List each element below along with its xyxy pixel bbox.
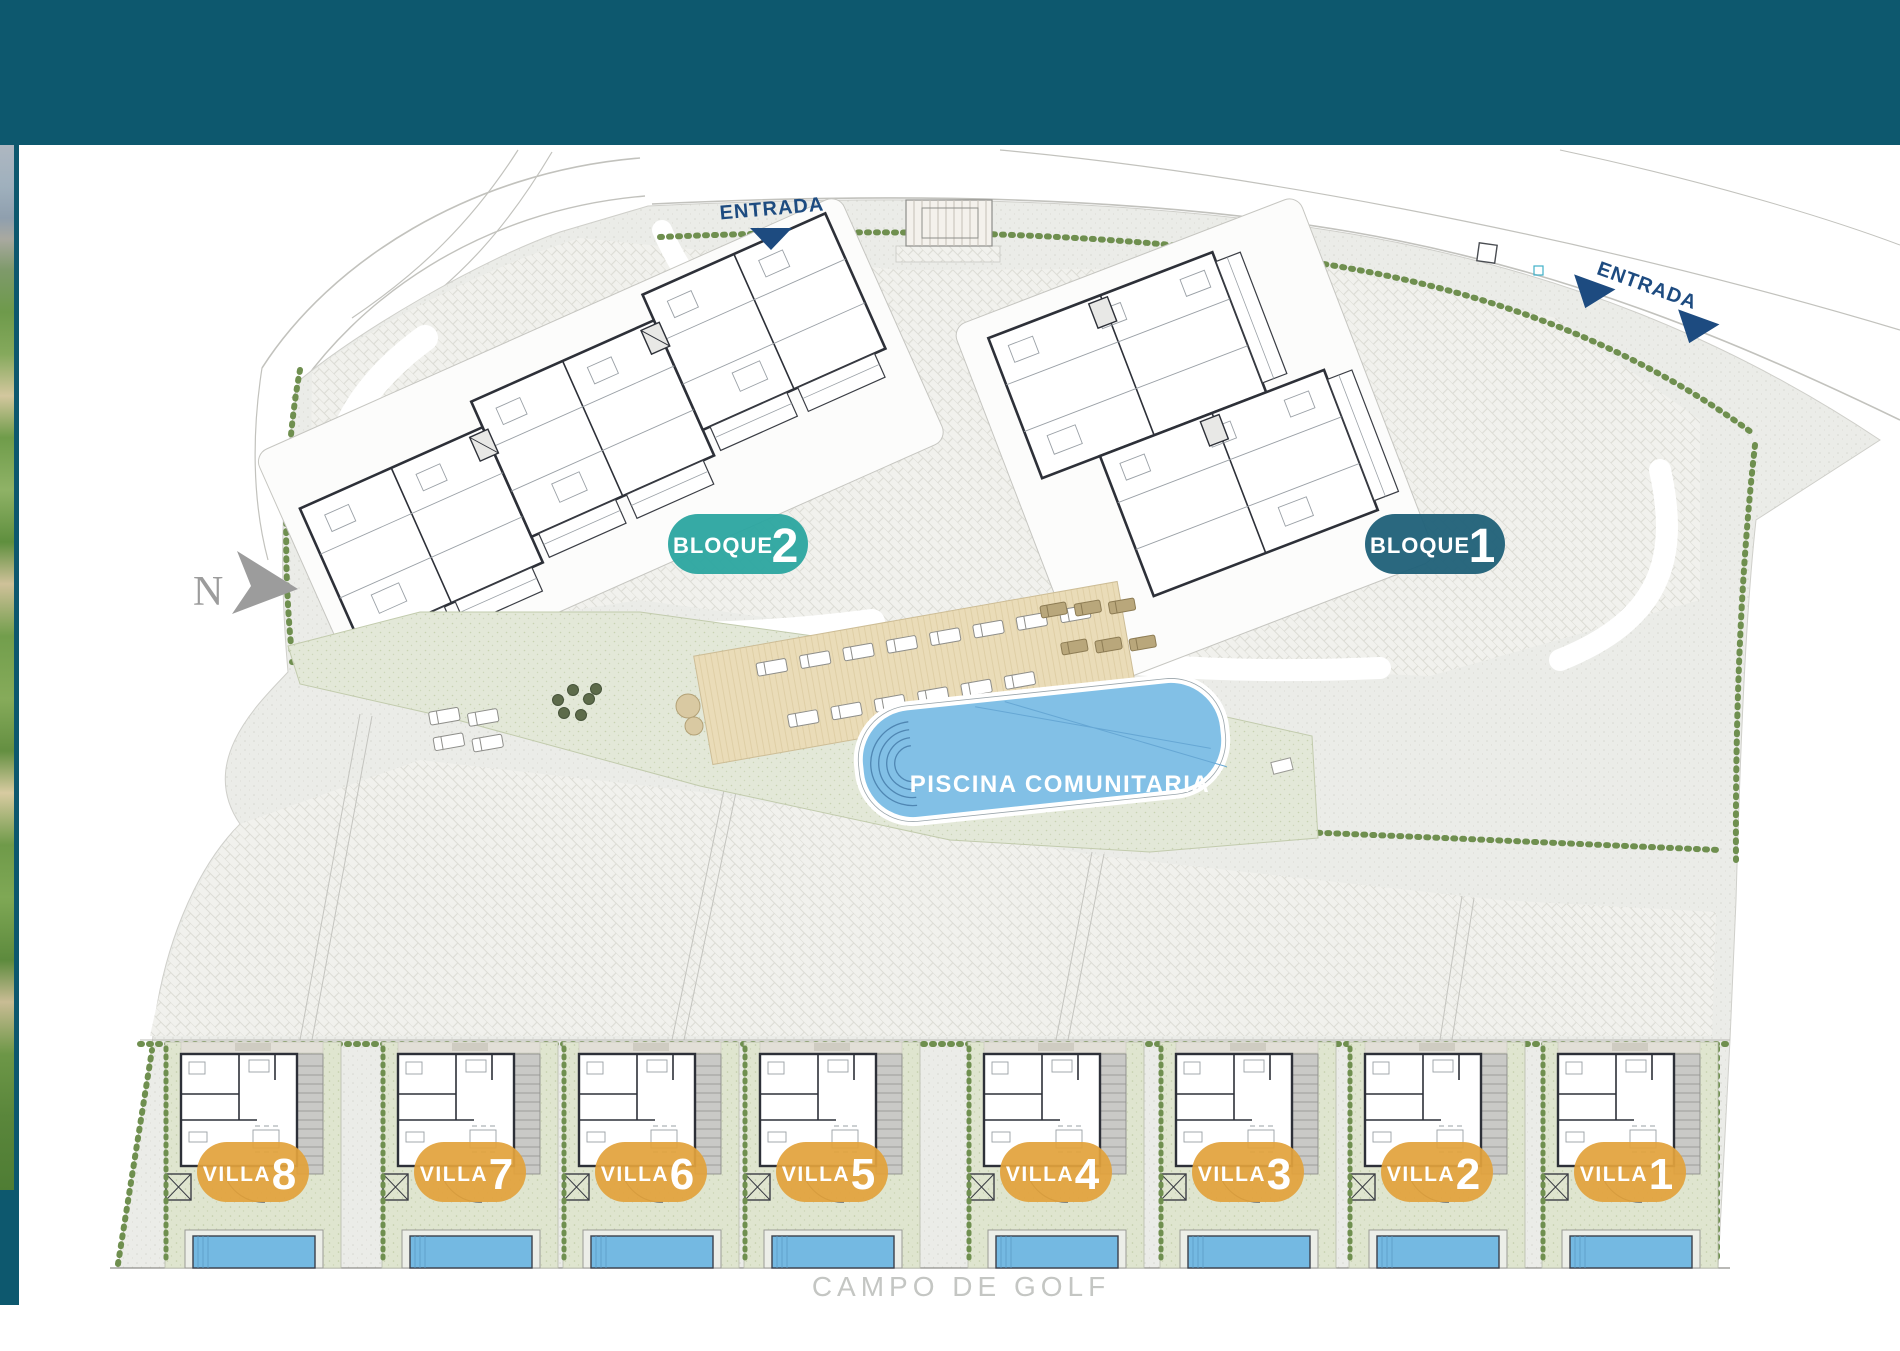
villa-badge-7: VILLA 7: [414, 1142, 526, 1202]
villa-number: 7: [489, 1150, 513, 1199]
villa-number: 8: [272, 1150, 296, 1199]
villa-number: 3: [1267, 1150, 1291, 1199]
villa-number: 1: [1649, 1150, 1673, 1199]
villa-badge-3: VILLA 3: [1192, 1142, 1304, 1202]
bloque-1-number: 1: [1469, 520, 1496, 573]
villa-label: VILLA: [1387, 1163, 1455, 1186]
villa-label: VILLA: [420, 1163, 488, 1186]
site-plan: PISCINA COMUNITARIA BLOQUE 2 BLOQUE 1 EN…: [0, 0, 1900, 1351]
utility-marker: [1534, 266, 1543, 275]
villa-badge-1: VILLA 1: [1574, 1142, 1686, 1202]
bloque-2-word: BLOQUE: [673, 533, 773, 558]
golf-course-label: CAMPO DE GOLF: [812, 1271, 1110, 1302]
north-label: N: [193, 569, 223, 615]
utility-box: [1477, 243, 1497, 263]
pool-label: PISCINA COMUNITARIA: [910, 771, 1211, 798]
villa-label: VILLA: [782, 1163, 850, 1186]
villa-badge-5: VILLA 5: [776, 1142, 888, 1202]
villa-number: 4: [1075, 1150, 1100, 1199]
villa-badge-8: VILLA 8: [197, 1142, 309, 1202]
villa-label: VILLA: [1006, 1163, 1074, 1186]
bloque-1-word: BLOQUE: [1370, 533, 1470, 558]
villa-label: VILLA: [1580, 1163, 1648, 1186]
entrance-pavilion: [896, 200, 1000, 262]
villa-number: 5: [851, 1150, 875, 1199]
villa-number: 2: [1456, 1150, 1480, 1199]
villa-badge-2: VILLA 2: [1381, 1142, 1493, 1202]
villa-label: VILLA: [1198, 1163, 1266, 1186]
bloque-2-number: 2: [772, 520, 799, 573]
bloque-1-badge: BLOQUE 1: [1365, 514, 1505, 574]
villa-number: 6: [670, 1150, 694, 1199]
villa-label: VILLA: [601, 1163, 669, 1186]
bloque-2-badge: BLOQUE 2: [668, 514, 808, 574]
villa-label: VILLA: [203, 1163, 271, 1186]
villa-badge-6: VILLA 6: [595, 1142, 707, 1202]
villa-badge-4: VILLA 4: [1000, 1142, 1112, 1202]
